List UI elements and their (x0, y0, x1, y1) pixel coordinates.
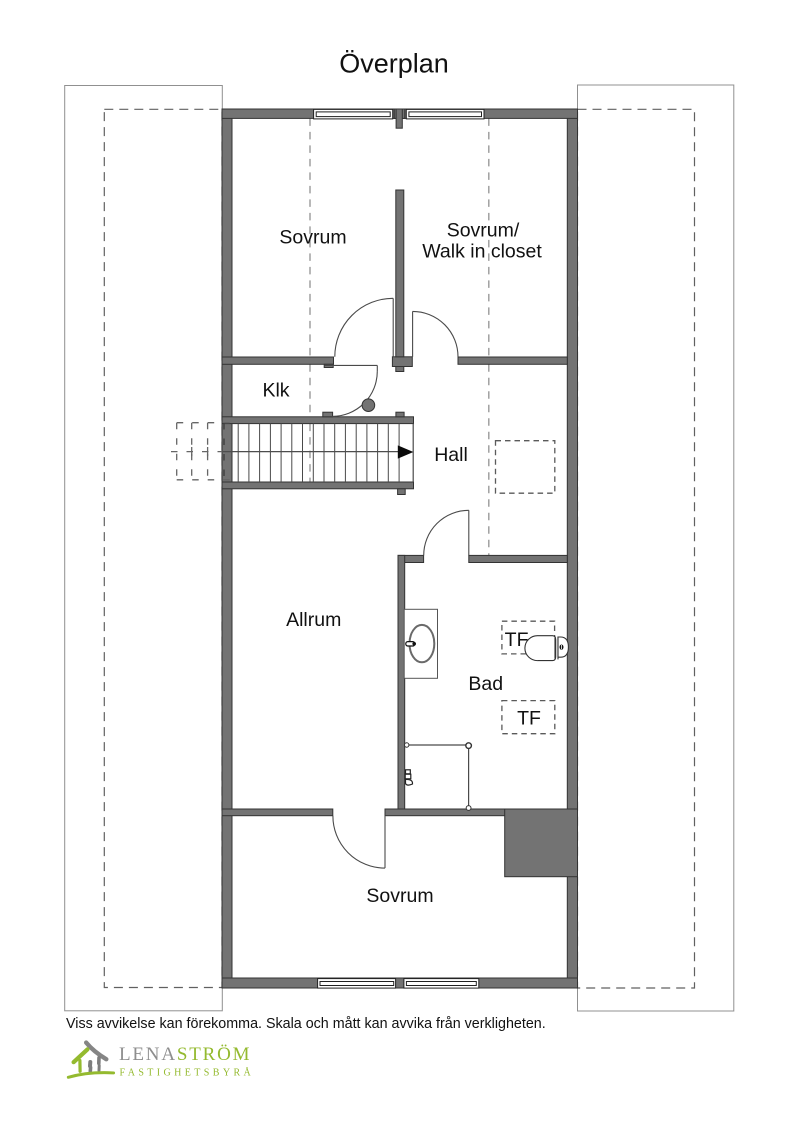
svg-text:Sovrum: Sovrum (366, 885, 433, 907)
svg-text:LENASTRÖM: LENASTRÖM (119, 1044, 251, 1065)
svg-text:FASTIGHETSBYRÅ: FASTIGHETSBYRÅ (120, 1067, 255, 1079)
svg-text:Sovrum: Sovrum (279, 227, 346, 249)
svg-text:Bad: Bad (468, 673, 503, 695)
svg-text:Klk: Klk (262, 379, 289, 401)
svg-text:Walk in closet: Walk in closet (422, 241, 542, 263)
svg-text:Hall: Hall (434, 444, 468, 466)
svg-text:Allrum: Allrum (286, 609, 341, 631)
svg-text:TF: TF (517, 708, 541, 730)
svg-text:Överplan: Överplan (339, 48, 449, 78)
svg-text:Sovrum/: Sovrum/ (447, 220, 520, 242)
svg-text:Viss avvikelse kan förekomma.: Viss avvikelse kan förekomma. Skala och … (66, 1016, 546, 1032)
svg-text:TF: TF (505, 629, 529, 651)
